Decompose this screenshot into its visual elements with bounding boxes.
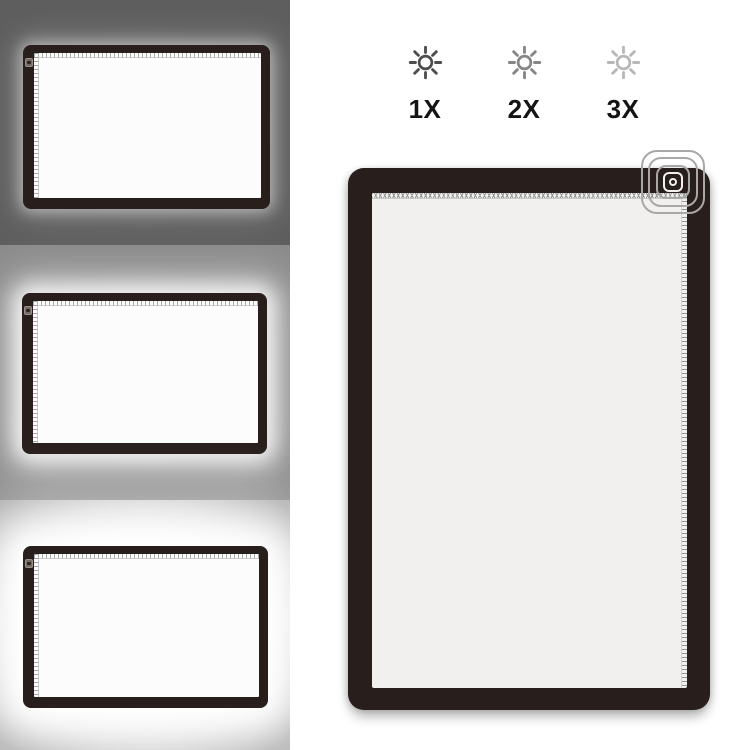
sun-brightness-icon <box>407 44 444 81</box>
brightness-level-3x: 3X <box>581 44 665 125</box>
ruler-left <box>34 53 39 198</box>
sun-brightness-icon <box>605 44 642 81</box>
ruler-left <box>34 554 39 697</box>
light-pad-preview-2x <box>22 293 267 454</box>
power-button-circle-icon <box>669 178 677 186</box>
ruler-top <box>372 193 687 199</box>
light-pad-screen <box>33 301 258 443</box>
power-button-icon <box>24 306 32 315</box>
brightness-label: 1X <box>409 94 442 125</box>
light-pad-preview-1x <box>23 45 270 209</box>
product-image: 1X 2X <box>0 0 750 750</box>
brightness-levels: 1X 2X <box>383 44 665 125</box>
ruler-top <box>34 554 259 559</box>
brightness-preview-2x <box>0 245 290 500</box>
brightness-level-2x: 2X <box>482 44 566 125</box>
light-pad-main <box>348 168 710 710</box>
power-button-icon <box>25 58 33 67</box>
brightness-label: 2X <box>508 94 541 125</box>
ruler-top <box>34 53 261 58</box>
sun-brightness-icon <box>506 44 543 81</box>
light-pad-screen <box>34 53 261 198</box>
brightness-level-1x: 1X <box>383 44 467 125</box>
ruler-left <box>33 301 38 443</box>
light-pad-preview-3x <box>23 546 268 708</box>
brightness-label: 3X <box>607 94 640 125</box>
ruler-right <box>681 193 687 688</box>
brightness-preview-1x <box>0 0 290 245</box>
light-pad-screen <box>34 554 259 697</box>
ruler-top <box>33 301 258 306</box>
power-button <box>663 172 683 192</box>
power-button-icon <box>25 559 33 568</box>
light-pad-screen <box>372 193 687 688</box>
brightness-preview-3x <box>0 500 290 750</box>
